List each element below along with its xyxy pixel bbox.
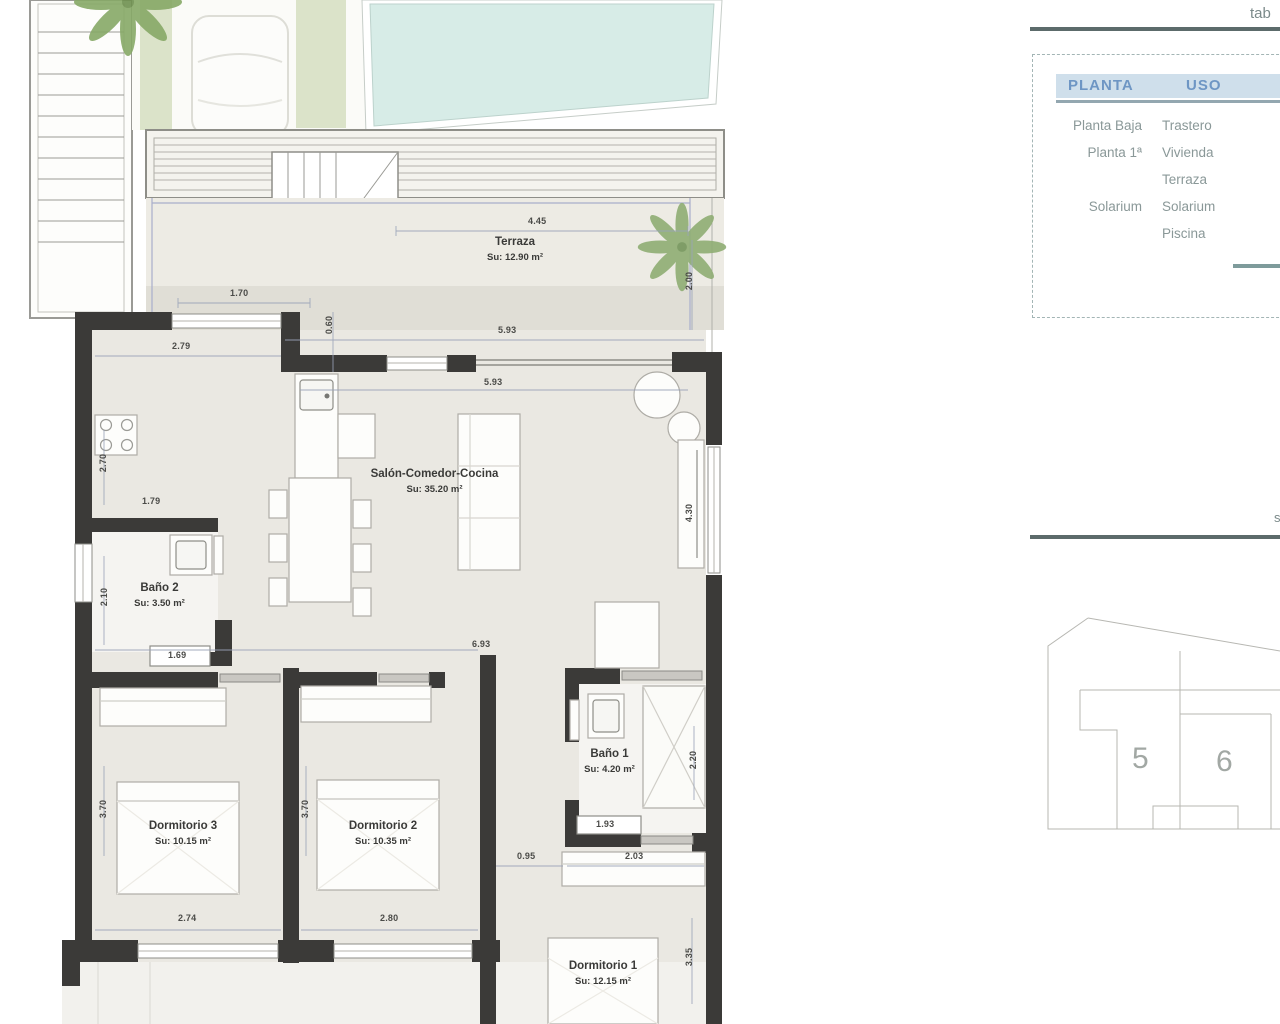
cell-uso: Piscina — [1162, 226, 1206, 241]
room-label-dorm2: Dormitorio 2 Su: 10.35 m² — [308, 818, 458, 850]
dim-terraza-left: 1.70 — [230, 288, 248, 298]
bathroom2-fixtures — [170, 535, 223, 575]
table-row: Piscina — [1046, 220, 1280, 247]
section-divider-mid — [1030, 535, 1280, 539]
header-uso: USO — [1186, 77, 1222, 94]
dim-salon-top: 5.93 — [498, 325, 516, 335]
dim-terraza-height: 2.00 — [684, 272, 694, 290]
cell-uso: Terraza — [1162, 172, 1207, 187]
cell-uso: Trastero — [1162, 118, 1212, 133]
bedroom3-furniture — [100, 688, 239, 894]
room-name: Dormitorio 1 — [528, 958, 678, 975]
section-divider-top — [1030, 27, 1280, 31]
room-label-bano1: Baño 1 Su: 4.20 m² — [552, 746, 667, 778]
site-plan-plot-6: 6 — [1216, 745, 1233, 779]
mid-right-partial-text: s — [1274, 510, 1280, 525]
room-area: Su: 3.50 m² — [102, 597, 217, 611]
room-name: Baño 1 — [552, 746, 667, 763]
dim-dorm1-width: 2.03 — [625, 851, 643, 861]
plant-pot-small — [668, 412, 700, 444]
room-name: Salón-Comedor-Cocina — [352, 466, 517, 483]
dim-terraza-width: 4.45 — [528, 216, 546, 226]
room-area: Su: 10.35 m² — [308, 835, 458, 849]
pool — [362, 0, 722, 134]
side-table — [595, 602, 659, 668]
table-row: Planta 1ª Vivienda — [1046, 139, 1280, 166]
exterior-staircase — [30, 0, 132, 318]
dim-salon-width: 6.93 — [472, 639, 490, 649]
cell-uso: Solarium — [1162, 199, 1215, 214]
cell-planta: Planta 1ª — [1046, 145, 1142, 160]
room-area: Su: 12.90 m² — [440, 251, 590, 265]
dim-kitchen-inner: 1.79 — [142, 496, 160, 506]
dim-wall-offset: 0.60 — [324, 316, 334, 334]
summary-table-rows: Planta Baja Trastero Planta 1ª Vivienda … — [1046, 112, 1280, 247]
dim-bano1-height: 2.20 — [688, 751, 698, 769]
room-name: Dormitorio 3 — [108, 818, 258, 835]
room-area: Su: 12.15 m² — [528, 975, 678, 989]
room-area: Su: 4.20 m² — [552, 763, 667, 777]
cell-planta: Planta Baja — [1046, 118, 1142, 133]
table-row: Terraza — [1046, 166, 1280, 193]
dim-bano1-width: 1.93 — [596, 819, 614, 829]
site-plan-sketch — [1048, 618, 1280, 829]
stove-icon — [95, 415, 137, 455]
room-label-bano2: Baño 2 Su: 3.50 m² — [102, 580, 217, 612]
table-footer-rule — [1233, 264, 1280, 268]
room-label-salon: Salón-Comedor-Cocina Su: 35.20 m² — [352, 466, 517, 498]
plant-pot — [634, 372, 680, 418]
table-row: Planta Baja Trastero — [1046, 112, 1280, 139]
dim-kitchen-width: 2.79 — [172, 341, 190, 351]
summary-table-header: PLANTA USO — [1056, 74, 1280, 98]
dim-kitchen-height: 2.70 — [98, 454, 108, 472]
site-plan-plot-5: 5 — [1132, 742, 1149, 776]
room-area: Su: 35.20 m² — [352, 483, 517, 497]
dim-bano2-height: 2.10 — [99, 588, 109, 606]
floorplan-page: Terraza Su: 12.90 m² Salón-Comedor-Cocin… — [0, 0, 1280, 1024]
dim-salon-top2: 5.93 — [484, 377, 502, 387]
cell-uso: Vivienda — [1162, 145, 1214, 160]
room-label-dorm1: Dormitorio 1 Su: 12.15 m² — [528, 958, 678, 990]
kitchen-appliance — [338, 414, 375, 458]
parking-area — [132, 0, 374, 136]
dim-hall-width: 0.95 — [517, 851, 535, 861]
cell-planta: Solarium — [1046, 199, 1142, 214]
room-name: Dormitorio 2 — [308, 818, 458, 835]
terraza-palm-icon — [638, 203, 727, 292]
deck — [146, 130, 724, 198]
room-label-dorm3: Dormitorio 3 Su: 10.15 m² — [108, 818, 258, 850]
room-area: Su: 10.15 m² — [108, 835, 258, 849]
room-label-terraza: Terraza Su: 12.90 m² — [440, 234, 590, 266]
summary-table-header-rule — [1056, 100, 1280, 103]
terraza-floor — [146, 198, 724, 352]
room-name: Terraza — [440, 234, 590, 251]
dim-dorm2-width: 2.80 — [380, 913, 398, 923]
dim-dorm3-height: 3.70 — [98, 800, 108, 818]
room-name: Baño 2 — [102, 580, 217, 597]
dim-dorm2-height: 3.70 — [300, 800, 310, 818]
dim-dorm3-width: 2.74 — [178, 913, 196, 923]
dining-table — [289, 478, 351, 602]
bedroom2-furniture — [301, 686, 439, 890]
dim-salon-height: 4.30 — [684, 504, 694, 522]
car-outline — [192, 16, 288, 136]
header-planta: PLANTA — [1068, 77, 1134, 94]
dim-dorm1-height: 3.35 — [684, 948, 694, 966]
top-right-partial-text: tab — [1250, 5, 1271, 22]
dim-bano2-width: 1.69 — [168, 650, 186, 660]
table-row: Solarium Solarium — [1046, 193, 1280, 220]
